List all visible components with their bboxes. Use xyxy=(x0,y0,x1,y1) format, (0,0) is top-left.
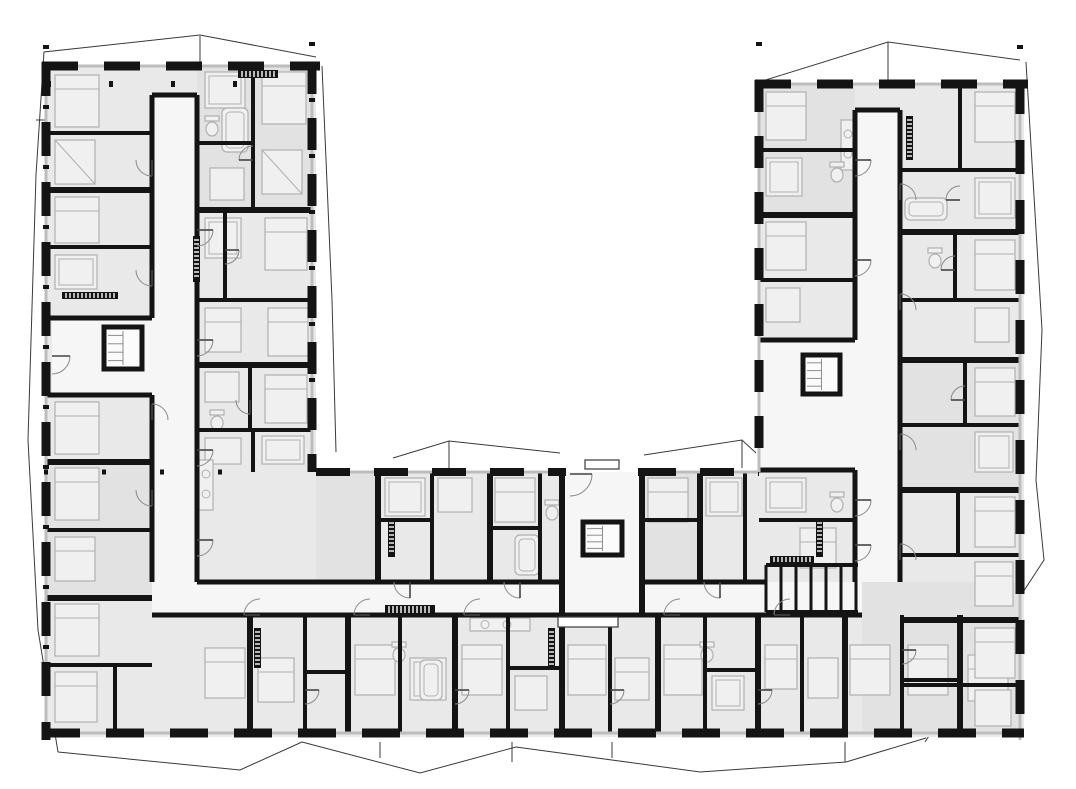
floor-plan-page xyxy=(0,0,1076,789)
floor-plan-drawing xyxy=(0,0,1076,789)
